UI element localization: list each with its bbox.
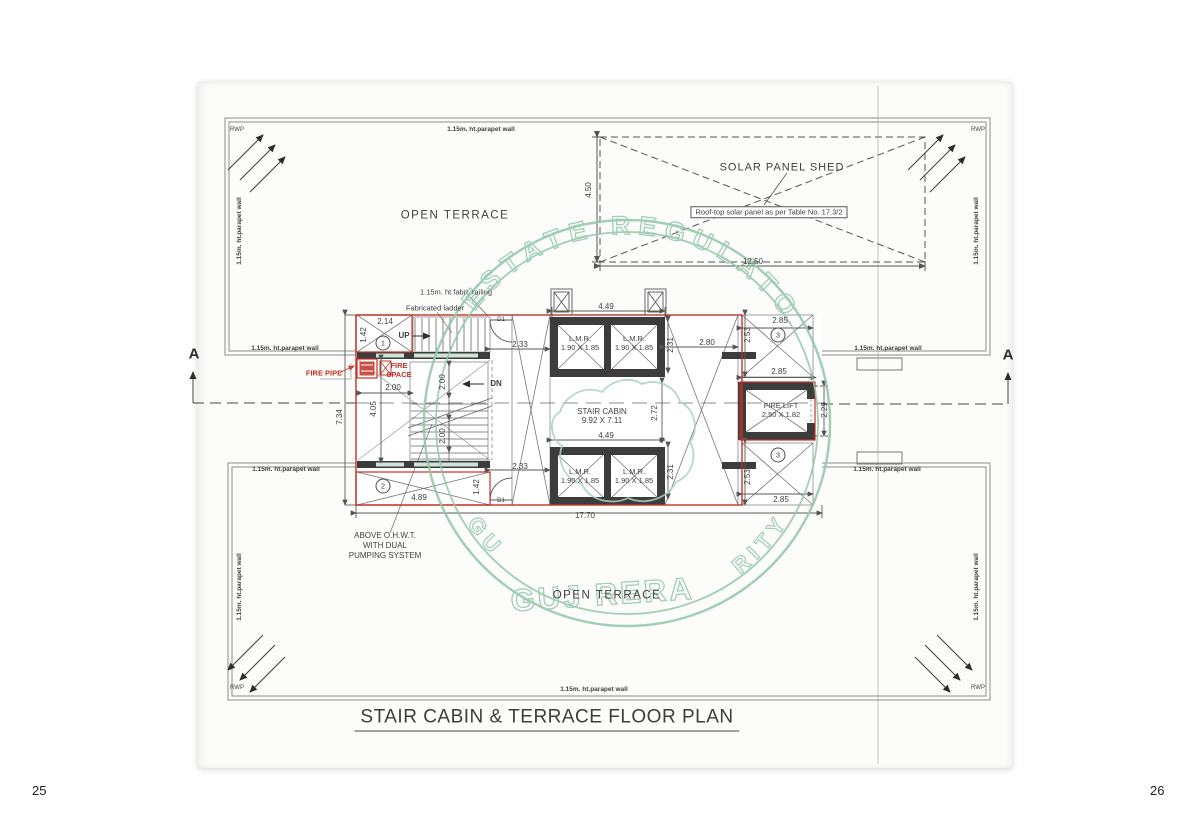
parapet-label-top: 1.15m. ht.parapet wall <box>447 127 515 134</box>
dim-2-53-bottom: 2.53 <box>744 469 752 485</box>
drawing-title: STAIR CABIN & TERRACE FLOOR PLAN <box>354 707 739 732</box>
ohwt-line2: WITH DUAL <box>349 541 421 551</box>
rwp-bottom-right: RWP <box>971 685 985 691</box>
solar-shed-note: Roof-top solar panel as per Table No. 17… <box>690 206 847 218</box>
watermark-arc-right: RITY <box>727 509 794 579</box>
parapet-label-right-upper: 1.15m. ht.parapet wall <box>974 197 981 265</box>
room-stair-cabin: STAIR CABIN9.92 X 7.11 <box>577 407 627 425</box>
room-lmr-2-size: 1.90 X 1.85 <box>615 343 653 352</box>
parapet-label-lower-left-inner: 1.15m. ht.parapet wall <box>252 467 320 474</box>
fire-space-line2: SPACE <box>386 370 411 379</box>
room-lmr-4-size: 1.90 X 1.85 <box>615 476 653 485</box>
room-lmr-1-size: 1.90 X 1.85 <box>561 343 599 352</box>
room-lmr-3-name: L.M.R. <box>561 467 599 476</box>
dim-2-00-horizontal: 2.00 <box>385 384 401 392</box>
dn-label: DN <box>490 380 502 388</box>
ladder-note: Fabricated ladder <box>406 304 464 312</box>
stair-cabin-size: 9.92 X 7.11 <box>577 416 627 425</box>
room-lmr-4: L.M.R.1.90 X 1.85 <box>615 467 653 485</box>
fire-lift-size: 2.50 X 1.82 <box>762 410 800 419</box>
dim-4-89: 4.89 <box>411 494 427 502</box>
dim-2-85-mid: 2.85 <box>771 368 787 376</box>
dim-solar-height: 4.50 <box>585 182 593 198</box>
svg-text:ESTATE REGULATO: ESTATE REGULATO <box>456 210 808 327</box>
dim-2-72: 2.72 <box>651 405 659 421</box>
rwp-top-right: RWP <box>971 127 985 133</box>
dim-7-34: 7.34 <box>336 409 344 425</box>
key-circle-3-bottom: 3 <box>771 448 786 463</box>
room-lmr-2: L.M.R.1.90 X 1.85 <box>615 334 653 352</box>
section-marker-left: A <box>189 347 200 362</box>
fire-space-label: FIRESPACE <box>386 361 411 379</box>
dim-17-70: 17.70 <box>575 512 595 520</box>
dim-4-05: 4.05 <box>370 401 378 417</box>
parapet-label-left-lower: 1.15m. ht.parapet wall <box>237 553 244 621</box>
railing-note: 1.15m. ht fabri. railing <box>420 288 492 296</box>
svg-text:GU: GU <box>463 512 510 562</box>
stair-cabin-name: STAIR CABIN <box>577 407 627 416</box>
section-marker-right: A <box>1003 348 1014 363</box>
door-label-bottom: D1 <box>497 498 505 504</box>
dim-2-00-lower: 2.00 <box>439 428 447 444</box>
room-lmr-3: L.M.R.1.90 X 1.85 <box>561 467 599 485</box>
parapet-label-right-lower: 1.15m. ht.parapet wall <box>974 553 981 621</box>
dim-2-85-top: 2.85 <box>772 317 788 325</box>
dim-2-33-top: 2.33 <box>512 341 528 349</box>
dim-2-31-bottom: 2.31 <box>667 464 675 480</box>
dim-2-00-upper: 2.00 <box>439 374 447 390</box>
room-lmr-3-size: 1.90 X 1.85 <box>561 476 599 485</box>
up-label: UP <box>398 332 409 340</box>
room-lmr-1-name: L.M.R. <box>561 334 599 343</box>
dim-1-42-bottom: 1.42 <box>473 479 481 495</box>
fire-lift-name: FIRE LIFT <box>762 401 800 410</box>
parapet-label-right-upper-inner: 1.15m. ht.parapet wall <box>854 346 922 353</box>
dim-2-29: 2.29 <box>821 402 829 418</box>
dim-2-85-bottom: 2.85 <box>773 496 789 504</box>
open-terrace-upper: OPEN TERRACE <box>401 210 510 222</box>
open-terrace-lower: OPEN TERRACE <box>553 590 662 602</box>
page-number-right: 26 <box>1150 783 1164 798</box>
scanned-floor-plan-page: { "page": { "title": "STAIR CABIN & TERR… <box>0 0 1200 838</box>
watermark-arc-left: GU <box>463 512 510 562</box>
key-circle-1: 1 <box>376 336 391 351</box>
door-label-top: D1 <box>497 317 505 323</box>
page-number-left: 25 <box>32 783 46 798</box>
dim-1-42-top: 1.42 <box>360 327 368 343</box>
dim-solar-width: 12.50 <box>743 258 763 266</box>
dim-2-53-top: 2.53 <box>744 327 752 343</box>
room-lmr-1: L.M.R.1.90 X 1.85 <box>561 334 599 352</box>
rwp-top-left: RWP <box>230 127 244 133</box>
room-fire-lift: FIRE LIFT2.50 X 1.82 <box>762 401 800 419</box>
dim-4-49-mid: 4.49 <box>598 432 614 440</box>
parapet-label-bottom: 1.15m. ht.parapet wall <box>560 687 628 694</box>
rwp-bottom-left: RWP <box>230 685 244 691</box>
parapet-label-right-lower-inner: 1.15m. ht.parapet wall <box>853 467 921 474</box>
dim-2-33-bottom: 2.33 <box>512 463 528 471</box>
room-lmr-2-name: L.M.R. <box>615 334 653 343</box>
dim-2-14: 2.14 <box>377 318 393 326</box>
ohwt-note: ABOVE O.H.W.T.WITH DUALPUMPING SYSTEM <box>349 531 421 561</box>
solar-panel-shed <box>592 137 925 271</box>
watermark-arc-top: ESTATE REGULATO <box>456 210 808 327</box>
ohwt-line1: ABOVE O.H.W.T. <box>349 531 421 541</box>
parapet-label-upper-left-inner: 1.15m. ht.parapet wall <box>251 346 319 353</box>
dim-4-49-top: 4.49 <box>598 303 614 311</box>
room-lmr-4-name: L.M.R. <box>615 467 653 476</box>
dim-2-80: 2.80 <box>699 339 715 347</box>
solar-shed-title: SOLAR PANEL SHED <box>720 163 845 174</box>
fire-space-line1: FIRE <box>386 361 411 370</box>
svg-text:RITY: RITY <box>727 509 794 579</box>
key-circle-3-top: 3 <box>771 328 786 343</box>
parapet-label-left-upper: 1.15m. ht.parapet wall <box>237 197 244 265</box>
fire-pipe-label: FIRE PIPE <box>306 369 342 377</box>
key-circle-2: 2 <box>376 479 391 494</box>
dim-2-31-top: 2.31 <box>667 337 675 353</box>
ohwt-line3: PUMPING SYSTEM <box>349 551 421 561</box>
